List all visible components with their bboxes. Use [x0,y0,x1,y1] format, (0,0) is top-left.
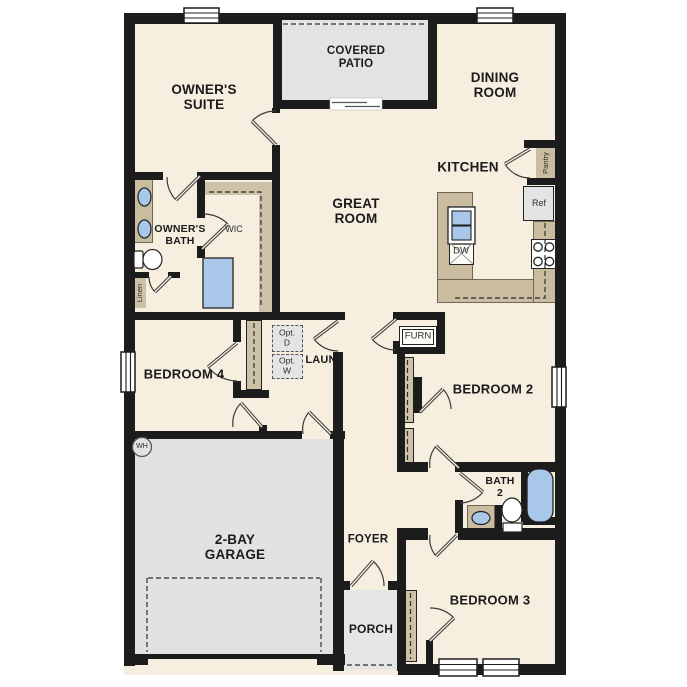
wall [555,13,566,675]
wall [133,272,149,278]
water-heater-label: WH [136,443,148,451]
wall [413,377,422,413]
wall [135,172,163,180]
wic-label: WIC [225,224,243,234]
wall [168,272,180,278]
dishwasher-label: DW [453,247,469,258]
wall [393,341,400,354]
wall [393,347,445,354]
bedroom4-label: BEDROOM 4 [144,368,225,383]
wall [458,462,556,472]
wall [521,468,528,522]
wall [124,654,148,665]
kitchen-label: KITCHEN [437,159,498,174]
porch-label: PORCH [349,623,393,637]
wall [333,431,344,671]
pantry-label: Pantry [542,152,550,174]
laundry-label: LAUN [305,354,336,366]
wall [397,528,406,671]
wall [398,664,566,675]
covered-patio-label: COVERED PATIO [327,45,385,71]
wall [523,517,556,525]
foyer-label: FOYER [348,534,389,547]
owners-bath-label: OWNER'S BATH [154,224,205,248]
wall [388,581,405,590]
wall [524,140,556,148]
opt-washer-label: Opt. W [279,356,295,375]
wic-shelf-right [259,182,272,312]
wall [273,13,282,108]
wall [333,581,350,590]
wall [273,100,330,109]
refrigerator-label: Ref [532,198,546,208]
wall [527,178,556,185]
linen-label: Linen [136,284,144,302]
bedroom3-label: BEDROOM 3 [430,594,550,609]
wall [197,180,205,218]
hall-closet-bifold [246,320,262,390]
wall [240,390,269,398]
wall [397,354,405,470]
wall [272,145,280,180]
wall [382,100,437,109]
wall [272,108,280,113]
floor-plan: OWNER'S SUITE COVERED PATIO DINING ROOM … [0,0,687,687]
range-box [531,239,556,269]
wall [393,312,445,320]
wall [124,13,135,666]
owners-bath-vanity [133,179,153,243]
wall [458,528,556,540]
wall [281,13,428,20]
wall [397,462,428,472]
wall [197,172,280,180]
wall [272,180,280,312]
wall [124,312,345,320]
wall [330,431,345,439]
wall [124,13,281,24]
dining-room-label: DINING ROOM [471,70,519,101]
wall [428,13,566,24]
wall [455,462,463,472]
furnace-label: FURN [405,332,431,343]
bath2-label: BATH 2 [485,476,514,500]
wall [428,13,437,108]
wall [124,431,302,439]
wall [426,640,433,664]
bedroom2-label: BEDROOM 2 [433,383,553,398]
great-room-label: GREAT ROOM [332,196,379,227]
garage-door-panel [146,654,320,659]
garage-label: 2-BAY GARAGE [205,532,265,563]
wall [233,320,241,342]
opt-dryer-label: Opt. D [279,328,295,347]
owners-suite-label: OWNER'S SUITE [171,82,236,113]
